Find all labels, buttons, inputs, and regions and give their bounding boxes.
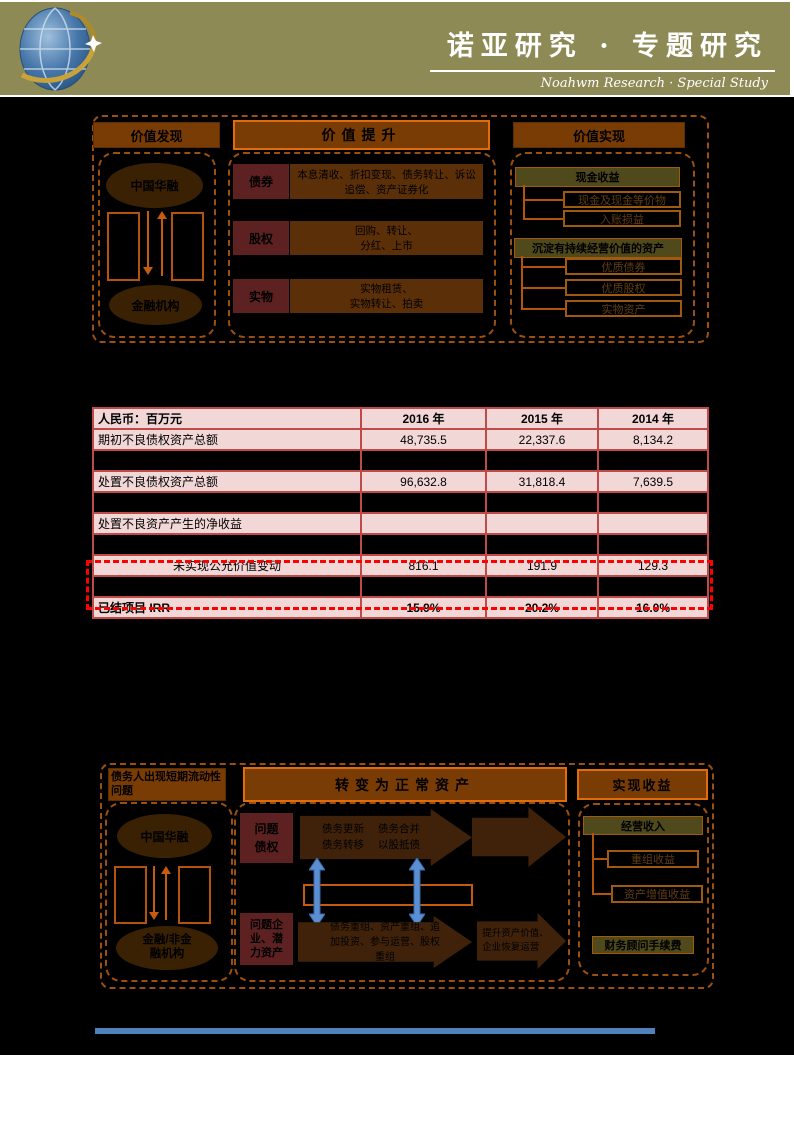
diagram1-exchange-box-left xyxy=(107,212,140,281)
diagram2-col3-header: 实现收益 xyxy=(577,769,708,800)
diagram1-asset-item-2: 优质股权 xyxy=(565,279,682,296)
connector-line xyxy=(521,287,565,289)
cell-value xyxy=(598,513,708,534)
report-subtitle: Noahwm Research · Special Study xyxy=(368,76,768,91)
connector-line xyxy=(523,199,563,201)
diagram1-row-bond-label: 债券 xyxy=(233,164,289,199)
spacer-cell xyxy=(361,492,486,513)
connector-line xyxy=(523,218,563,220)
diagram1-exchange-box-right xyxy=(171,212,204,281)
table-spacer-row xyxy=(93,534,708,555)
cell-value: 22,337.6 xyxy=(486,429,598,450)
cell-value xyxy=(361,513,486,534)
bottom-divider-line xyxy=(95,1028,655,1034)
connector-line xyxy=(521,266,565,268)
diagram2-advisory-fee-box: 财务顾问手续费 xyxy=(592,936,694,954)
table-col-2015: 2015 年 xyxy=(486,408,598,429)
diagram2-col1-header: 债务人出现短期流动性问题 xyxy=(108,768,226,801)
diagram2-problem-enterprise-box: 问题企 业、潜 力资产 xyxy=(240,913,293,965)
table-row: 处置不良资产产生的净收益 xyxy=(93,513,708,534)
down-arrow-icon xyxy=(147,211,149,267)
diagram1-financial-institution-ellipse: 金融机构 xyxy=(109,285,202,325)
connector-line xyxy=(523,185,525,220)
cell-value: 31,818.4 xyxy=(486,471,598,492)
blue-double-arrow-icon xyxy=(409,858,425,926)
blue-double-arrow-icon xyxy=(309,858,325,926)
diagram2-problem-debt-box: 问题 债权 xyxy=(240,813,293,863)
arrow-text: 债务合并 以股抵债 xyxy=(378,822,420,854)
arrow-text: 债务更新 债务转移 xyxy=(322,822,364,854)
diagram1-row-physical-label: 实物 xyxy=(233,279,289,313)
spacer-cell xyxy=(361,534,486,555)
cell-value: 48,735.5 xyxy=(361,429,486,450)
up-arrowhead-icon xyxy=(161,866,171,874)
table-header-row: 人民币：百万元 2016 年 2015 年 2014 年 xyxy=(93,408,708,429)
spacer-cell xyxy=(486,534,598,555)
diagram1-col1-header: 价值发现 xyxy=(93,122,220,148)
diagram1-cash-item-1: 现金及现金等价物 xyxy=(563,191,681,208)
table-spacer-row xyxy=(93,492,708,513)
down-arrow-icon xyxy=(153,866,155,912)
arrow-text: 提升资产价值、 企业恢复运营 xyxy=(482,927,549,956)
diagram1-cash-income-header: 现金收益 xyxy=(515,167,680,187)
connector-line xyxy=(521,256,523,310)
report-title: 诺亚研究 · 专题研究 xyxy=(248,24,768,63)
cell-value: 8,134.2 xyxy=(598,429,708,450)
diagram1-cash-item-2: 入账损益 xyxy=(563,210,681,227)
table-spacer-row xyxy=(93,450,708,471)
diagram1-retained-assets-header: 沉淀有持续经营价值的资产 xyxy=(514,238,682,258)
diagram1-col3-header: 价值实现 xyxy=(513,122,685,148)
spacer-cell xyxy=(93,534,361,555)
table-col-2016: 2016 年 xyxy=(361,408,486,429)
spacer-cell xyxy=(486,450,598,471)
diagram2-exchange-box-right xyxy=(178,866,211,924)
connector-line xyxy=(592,893,611,895)
diagram1-row-equity-label: 股权 xyxy=(233,221,289,255)
row-label: 处置不良债权资产总额 xyxy=(93,471,361,492)
diagram2-middle-empty-box xyxy=(303,884,473,906)
diagram1-row-bond-text: 本息清收、折扣变现、债务转让、诉讼追偿、资产证券化 xyxy=(290,164,483,199)
down-arrowhead-icon xyxy=(143,267,153,275)
title-divider xyxy=(430,70,775,72)
report-page: 诺亚研究 · 专题研究 Noahwm Research · Special St… xyxy=(0,0,794,1123)
cell-value: 96,632.8 xyxy=(361,471,486,492)
down-arrowhead-icon xyxy=(149,912,159,920)
irr-highlight-box xyxy=(86,560,713,610)
connector-line xyxy=(521,308,565,310)
connector-line xyxy=(592,833,594,895)
connector-line xyxy=(592,858,607,860)
diagram2-income-item-1: 重组收益 xyxy=(607,850,699,868)
diagram2-col2-header: 转变为正常资产 xyxy=(243,767,567,802)
arrow-text: 债务重组、资产重组、追加投资、参与运营、股权重组 xyxy=(326,920,444,965)
spacer-cell xyxy=(361,450,486,471)
table-col-currency: 人民币：百万元 xyxy=(93,408,361,429)
spacer-cell xyxy=(598,534,708,555)
diagram1-huarong-ellipse: 中国华融 xyxy=(106,163,203,208)
diagram2-institution-ellipse: 金融/非金 融机构 xyxy=(116,926,218,970)
spacer-cell xyxy=(486,492,598,513)
up-arrow-icon xyxy=(161,219,163,276)
diagram1-asset-item-1: 优质债券 xyxy=(565,258,682,275)
spacer-cell xyxy=(598,450,708,471)
diagram1-row-physical-text: 实物租赁、 实物转让、拍卖 xyxy=(290,279,483,313)
diagram1-col2-header: 价值提升 xyxy=(233,120,490,150)
diagram2-huarong-ellipse: 中国华融 xyxy=(117,814,212,858)
diagram1-asset-item-3: 实物资产 xyxy=(565,300,682,317)
spacer-cell xyxy=(93,450,361,471)
up-arrow-icon xyxy=(165,874,167,920)
diagram2-income-item-2: 资产增值收益 xyxy=(611,885,703,903)
table-row: 期初不良债权资产总额 48,735.5 22,337.6 8,134.2 xyxy=(93,429,708,450)
cell-value: 7,639.5 xyxy=(598,471,708,492)
spacer-cell xyxy=(598,492,708,513)
row-label: 期初不良债权资产总额 xyxy=(93,429,361,450)
cell-value xyxy=(486,513,598,534)
diagram1-row-equity-text: 回购、转让、 分红、上市 xyxy=(290,221,483,255)
diagram2-exchange-box-left xyxy=(114,866,147,924)
table-col-2014: 2014 年 xyxy=(598,408,708,429)
diagram2-operating-income-header: 经营收入 xyxy=(583,816,703,835)
up-arrowhead-icon xyxy=(157,211,167,219)
table-row: 处置不良债权资产总额 96,632.8 31,818.4 7,639.5 xyxy=(93,471,708,492)
spacer-cell xyxy=(93,492,361,513)
row-label: 处置不良资产产生的净收益 xyxy=(93,513,361,534)
globe-logo-icon xyxy=(10,5,104,93)
